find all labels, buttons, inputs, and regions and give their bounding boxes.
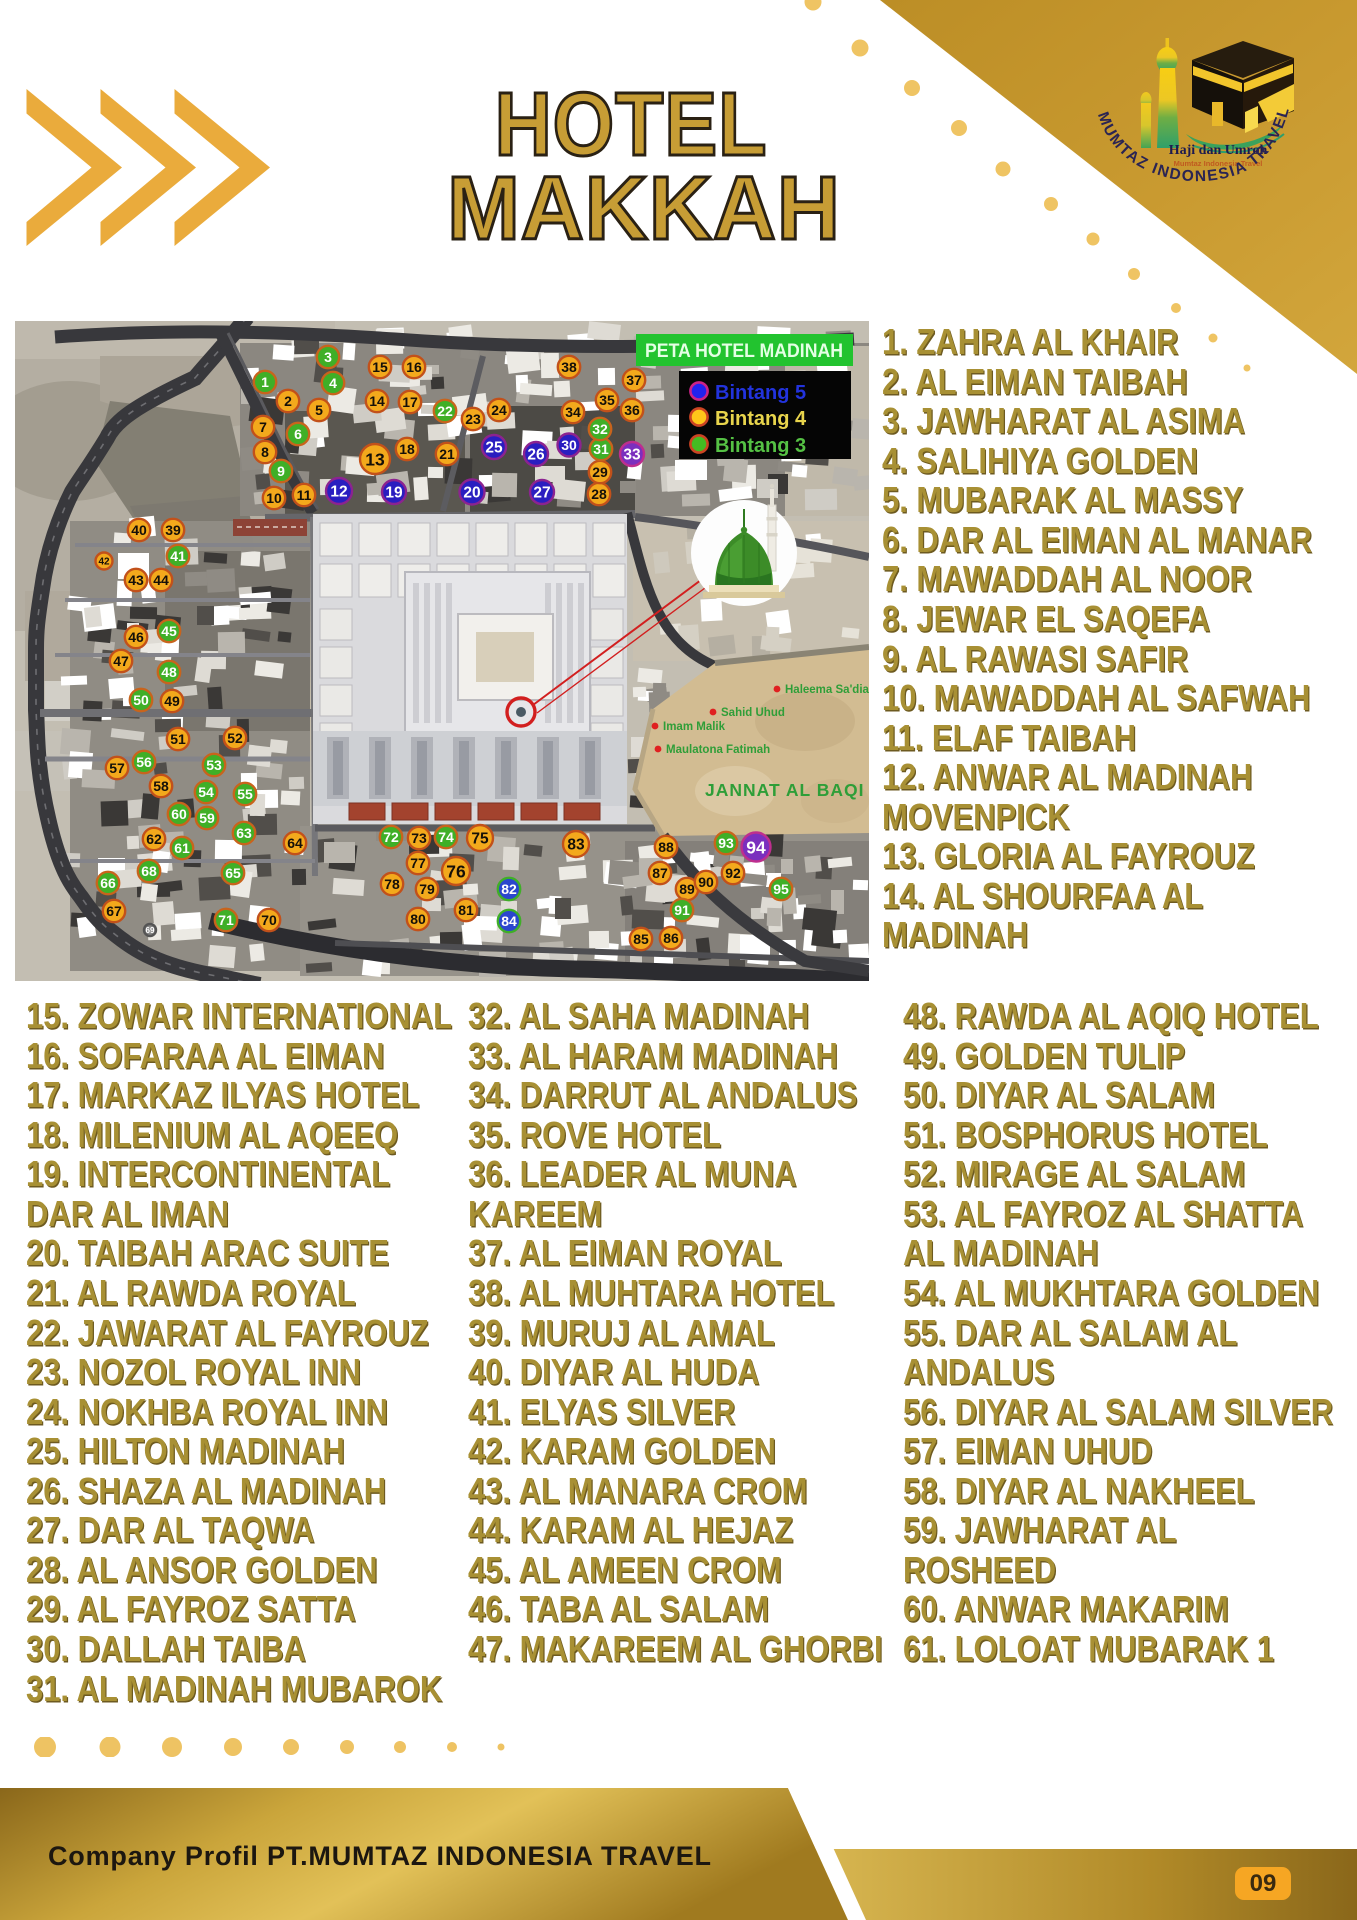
- svg-text:86: 86: [663, 930, 679, 946]
- svg-text:38: 38: [561, 359, 577, 375]
- svg-text:33: 33: [623, 447, 641, 464]
- svg-text:2: 2: [284, 393, 292, 409]
- svg-text:47: 47: [113, 653, 129, 669]
- svg-text:4: 4: [329, 375, 337, 391]
- svg-text:52: 52: [227, 730, 243, 746]
- svg-text:81: 81: [458, 902, 474, 918]
- svg-text:71: 71: [218, 912, 234, 928]
- svg-text:PETA HOTEL MADINAH: PETA HOTEL MADINAH: [645, 341, 843, 362]
- svg-text:36: 36: [624, 402, 640, 418]
- svg-text:41: 41: [170, 548, 186, 564]
- svg-text:68: 68: [141, 863, 157, 879]
- svg-text:15: 15: [372, 359, 388, 375]
- svg-text:21: 21: [439, 446, 455, 462]
- svg-text:13: 13: [365, 449, 385, 469]
- svg-text:84: 84: [501, 913, 517, 929]
- svg-text:37: 37: [626, 372, 642, 388]
- svg-text:58: 58: [153, 778, 169, 794]
- svg-text:6: 6: [294, 426, 302, 442]
- svg-text:28: 28: [591, 486, 607, 502]
- svg-text:18: 18: [399, 441, 415, 457]
- svg-text:51: 51: [170, 731, 186, 747]
- svg-text:44: 44: [153, 572, 169, 588]
- svg-text:1: 1: [261, 374, 269, 390]
- svg-text:94: 94: [746, 837, 766, 857]
- svg-text:Bintang 4: Bintang 4: [715, 408, 807, 430]
- svg-text:49: 49: [164, 693, 180, 709]
- svg-text:69: 69: [146, 926, 155, 935]
- svg-text:30: 30: [561, 437, 577, 453]
- svg-text:73: 73: [411, 830, 427, 846]
- svg-text:Imam Malik: Imam Malik: [663, 721, 726, 733]
- svg-text:JANNAT AL BAQI: JANNAT AL BAQI: [705, 780, 865, 800]
- svg-text:89: 89: [679, 881, 695, 897]
- svg-text:56: 56: [136, 754, 152, 770]
- svg-text:Haleema Sa'dia: Haleema Sa'dia: [785, 684, 869, 696]
- svg-text:10: 10: [266, 490, 282, 506]
- svg-text:79: 79: [419, 881, 435, 897]
- svg-text:17: 17: [402, 394, 418, 410]
- svg-text:93: 93: [718, 835, 734, 851]
- svg-text:70: 70: [261, 912, 277, 928]
- svg-text:8: 8: [261, 444, 269, 460]
- svg-text:75: 75: [471, 831, 489, 848]
- svg-text:23: 23: [465, 411, 481, 427]
- svg-text:43: 43: [128, 572, 144, 588]
- svg-text:16: 16: [406, 359, 422, 375]
- svg-text:Bintang 5: Bintang 5: [715, 382, 806, 404]
- svg-text:55: 55: [237, 786, 253, 802]
- svg-text:90: 90: [698, 874, 714, 890]
- svg-text:14: 14: [369, 393, 385, 409]
- svg-text:54: 54: [198, 784, 214, 800]
- svg-text:61: 61: [174, 840, 190, 856]
- svg-text:20: 20: [463, 485, 480, 502]
- svg-text:9: 9: [277, 463, 285, 479]
- svg-text:87: 87: [652, 865, 668, 881]
- svg-text:46: 46: [128, 629, 144, 645]
- svg-text:63: 63: [236, 825, 252, 841]
- svg-text:27: 27: [533, 485, 550, 502]
- svg-text:78: 78: [384, 876, 400, 892]
- svg-text:34: 34: [565, 404, 581, 420]
- svg-text:60: 60: [171, 806, 187, 822]
- svg-text:11: 11: [297, 487, 312, 503]
- svg-text:80: 80: [410, 911, 426, 927]
- svg-text:64: 64: [287, 835, 303, 851]
- svg-text:12: 12: [330, 484, 347, 501]
- svg-text:Sahid Uhud: Sahid Uhud: [721, 707, 785, 719]
- svg-text:26: 26: [527, 447, 545, 464]
- svg-text:82: 82: [501, 881, 517, 897]
- svg-text:Maulatona Fatimah: Maulatona Fatimah: [666, 744, 770, 756]
- svg-text:67: 67: [106, 903, 122, 919]
- svg-text:22: 22: [437, 403, 453, 419]
- svg-text:Bintang 3: Bintang 3: [715, 435, 806, 457]
- svg-text:95: 95: [773, 881, 789, 897]
- svg-text:7: 7: [259, 419, 267, 435]
- svg-text:66: 66: [100, 875, 116, 891]
- svg-text:59: 59: [199, 810, 215, 826]
- svg-text:72: 72: [383, 829, 399, 845]
- svg-text:25: 25: [485, 440, 503, 457]
- svg-text:92: 92: [725, 865, 741, 881]
- svg-text:77: 77: [410, 855, 426, 871]
- svg-text:3: 3: [324, 349, 332, 365]
- svg-text:35: 35: [599, 392, 615, 408]
- svg-text:29: 29: [592, 464, 608, 480]
- svg-text:5: 5: [315, 402, 323, 418]
- svg-text:31: 31: [593, 441, 609, 457]
- svg-text:48: 48: [161, 664, 177, 680]
- svg-text:53: 53: [206, 757, 222, 773]
- svg-text:62: 62: [146, 831, 162, 847]
- svg-text:42: 42: [98, 557, 110, 568]
- svg-text:74: 74: [438, 829, 454, 845]
- svg-text:65: 65: [225, 865, 241, 881]
- svg-text:91: 91: [674, 902, 690, 918]
- svg-text:39: 39: [165, 522, 181, 538]
- svg-text:32: 32: [592, 421, 608, 437]
- svg-text:24: 24: [491, 402, 507, 418]
- svg-text:88: 88: [658, 839, 674, 855]
- svg-text:83: 83: [567, 837, 585, 854]
- svg-text:45: 45: [161, 623, 177, 639]
- svg-text:57: 57: [109, 760, 125, 776]
- svg-text:76: 76: [446, 861, 466, 881]
- svg-text:40: 40: [131, 522, 147, 538]
- svg-text:50: 50: [133, 692, 149, 708]
- svg-text:19: 19: [385, 485, 403, 502]
- svg-text:85: 85: [633, 931, 649, 947]
